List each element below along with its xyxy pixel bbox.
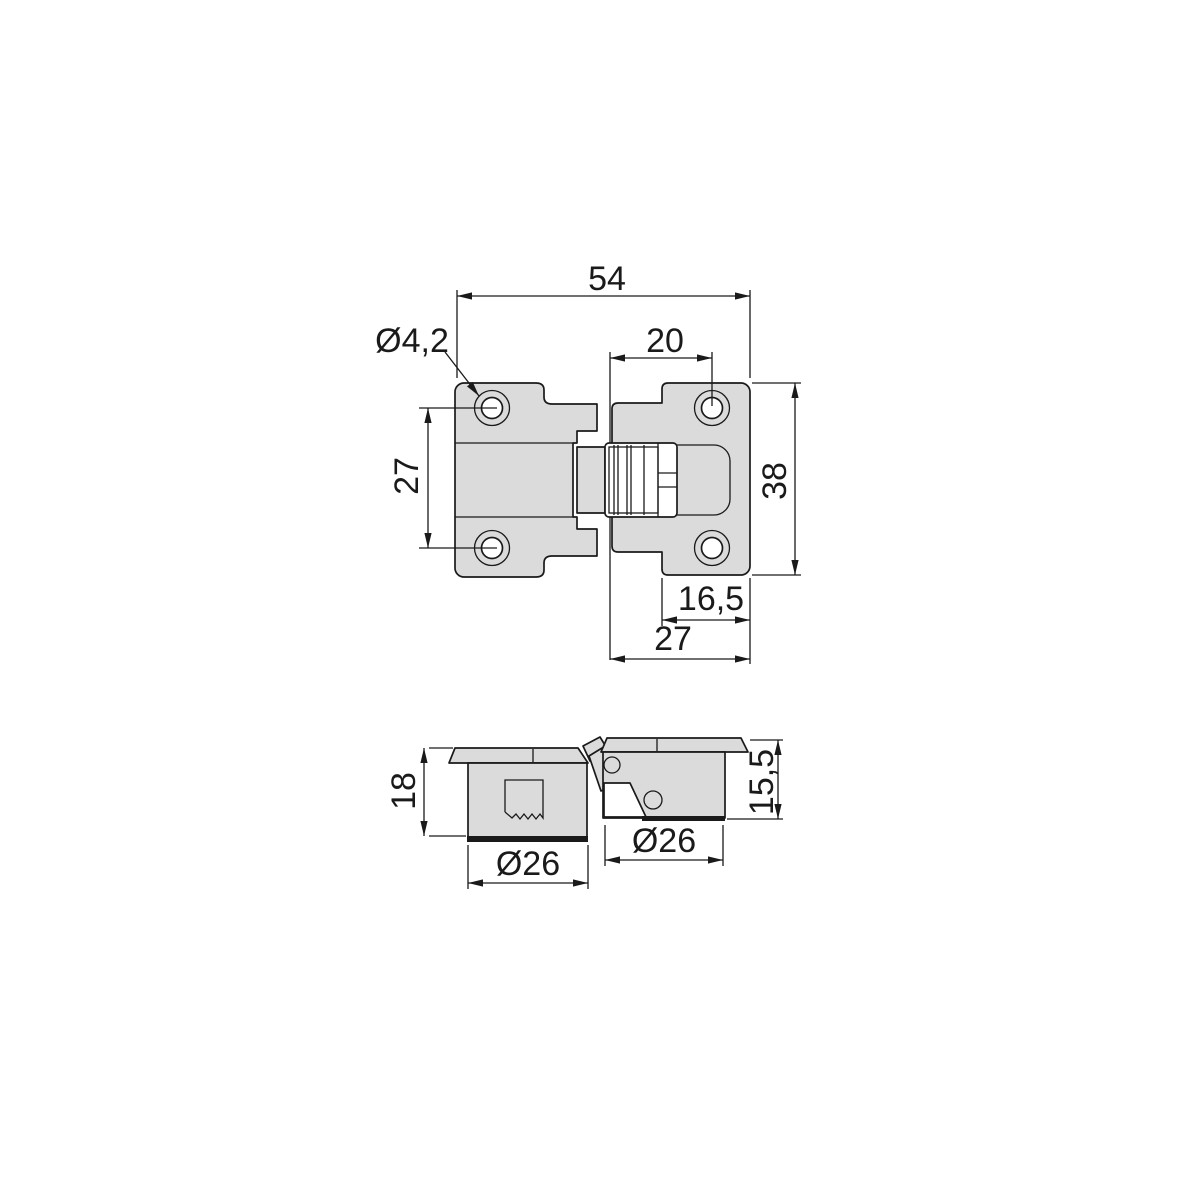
- left-cup-flange: [449, 748, 588, 763]
- right-cup: [601, 738, 748, 821]
- left-cup-base-bar: [467, 836, 588, 842]
- dim-label-right-cup-depth: 15,5: [743, 749, 781, 815]
- drawing-canvas: 54 20 Ø4,2 27 38 16,5: [0, 0, 1181, 1181]
- right-cup-flange: [601, 738, 748, 752]
- dim-hole-offset: 20: [610, 322, 712, 360]
- dim-overall-width: 54: [457, 260, 750, 378]
- dim-label-plate-height: 38: [756, 462, 794, 500]
- dim-label-hole-edge-offset: 16,5: [678, 580, 744, 618]
- dim-label-right-cup-dia: Ø26: [632, 822, 696, 860]
- dim-left-cup-dia: Ø26: [468, 845, 588, 889]
- side-view: 18 Ø26 Ø26 15,5: [385, 737, 783, 889]
- hinge-technical-drawing: 54 20 Ø4,2 27 38 16,5: [0, 0, 1181, 1181]
- left-cup-body: [468, 763, 587, 837]
- dim-plate-height: 38: [752, 383, 801, 575]
- dim-label-screw-hole-dia: Ø4,2: [375, 322, 449, 360]
- dim-label-left-cup-dia: Ø26: [496, 845, 560, 883]
- dim-label-hole-spacing: 27: [388, 457, 426, 495]
- plan-view: 54 20 Ø4,2 27 38 16,5: [375, 260, 801, 664]
- dim-label-left-cup-depth: 18: [385, 772, 423, 810]
- dim-label-right-plate-width: 27: [654, 620, 692, 658]
- right-cup-base-bar: [642, 816, 725, 821]
- left-cup: [449, 748, 588, 842]
- dim-label-overall-width: 54: [588, 260, 626, 298]
- dim-label-hole-offset: 20: [646, 322, 684, 360]
- hinge-arm: [577, 447, 605, 513]
- knuckle-band: [605, 443, 677, 517]
- dim-right-cup-dia: Ø26: [605, 822, 723, 866]
- dim-hole-spacing: 27: [388, 408, 428, 548]
- dim-right-plate-width: 27: [610, 620, 750, 659]
